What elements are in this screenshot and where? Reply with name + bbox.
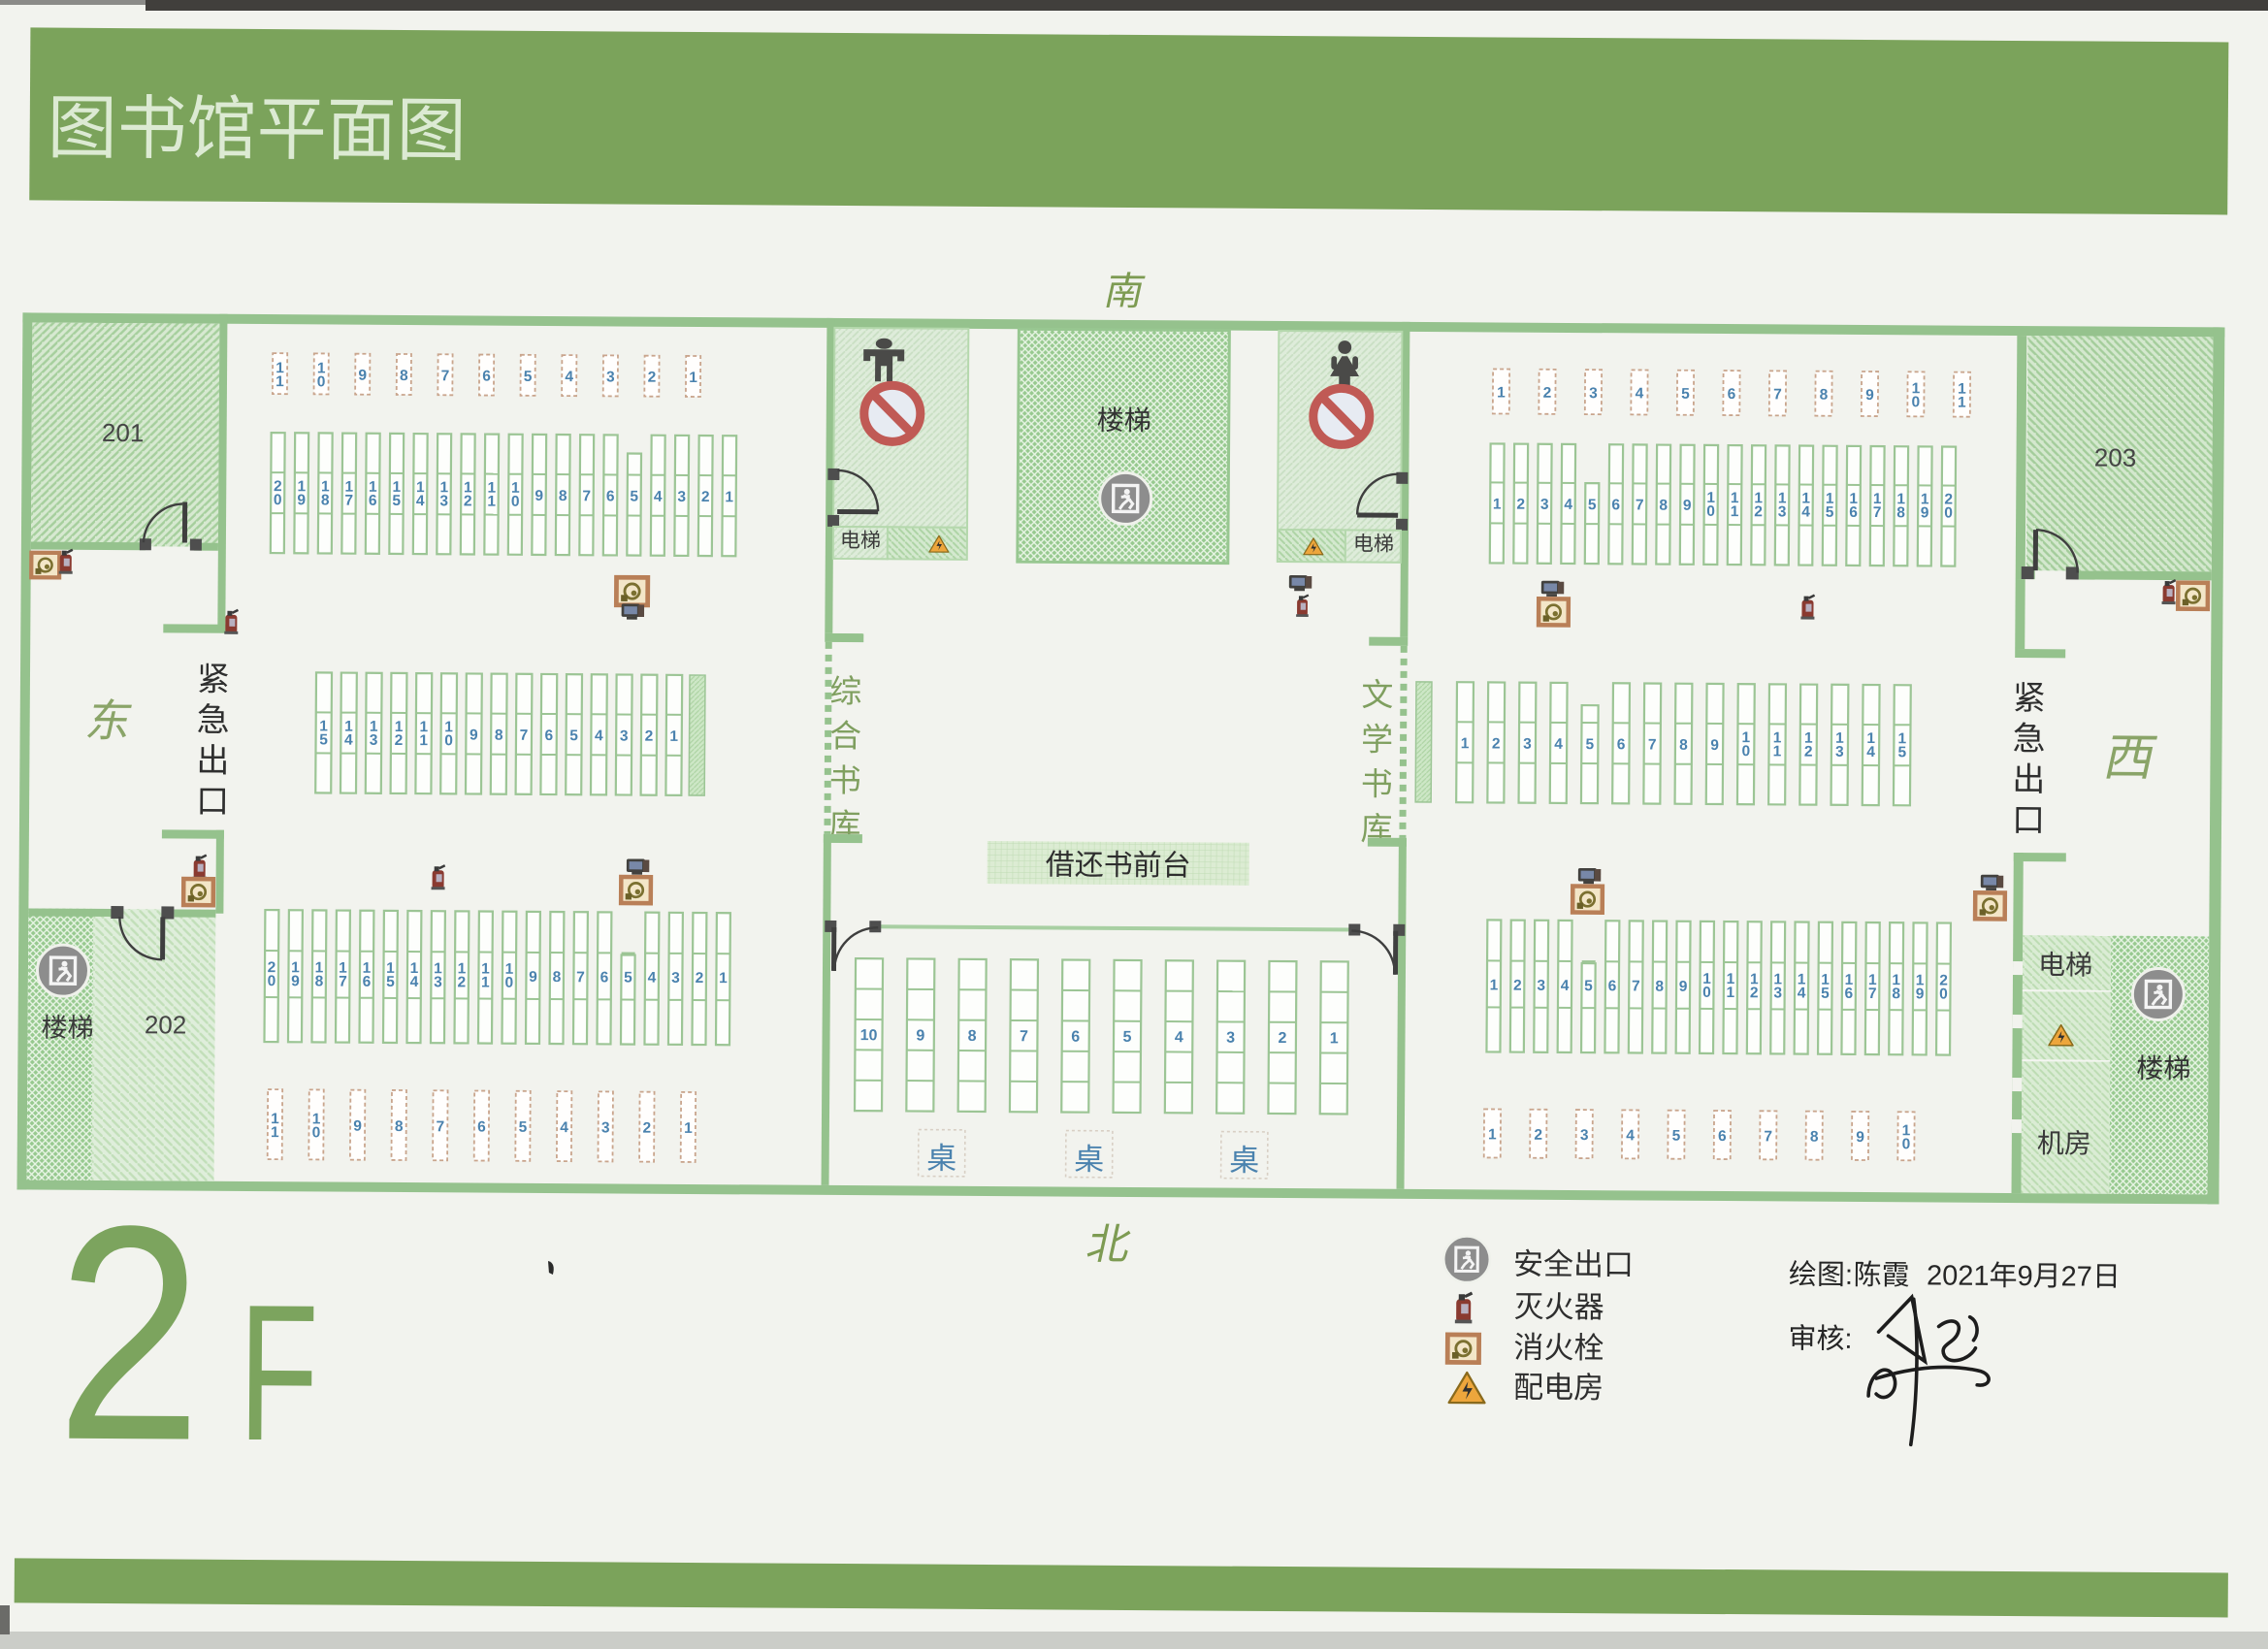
svg-text:19: 19 [291, 959, 300, 989]
svg-text:1: 1 [684, 1120, 693, 1137]
svg-text:15: 15 [1826, 491, 1834, 521]
svg-text:17: 17 [1873, 491, 1882, 521]
svg-text:11: 11 [481, 961, 490, 991]
svg-text:10: 10 [444, 719, 453, 749]
svg-text:14: 14 [1798, 972, 1806, 1002]
svg-text:10: 10 [1902, 1122, 1911, 1152]
svg-text:8: 8 [1820, 387, 1829, 404]
svg-text:17: 17 [344, 479, 353, 509]
svg-text:4: 4 [1564, 497, 1572, 513]
svg-text:10: 10 [1702, 971, 1711, 1001]
svg-text:3: 3 [1589, 385, 1598, 402]
svg-text:15: 15 [1821, 972, 1830, 1002]
svg-text:3: 3 [1540, 497, 1549, 513]
svg-text:11: 11 [1726, 971, 1734, 1001]
svg-text:12: 12 [1754, 490, 1763, 520]
svg-text:10: 10 [860, 1027, 878, 1044]
svg-text:4: 4 [1561, 978, 1570, 994]
svg-text:1: 1 [689, 370, 697, 386]
svg-text:5: 5 [1588, 497, 1597, 513]
svg-text:8: 8 [395, 1118, 404, 1135]
svg-text:12: 12 [464, 479, 472, 509]
svg-text::: : [1844, 1324, 1852, 1355]
svg-text:5: 5 [1681, 386, 1690, 403]
svg-text:6: 6 [544, 727, 553, 744]
svg-text:2: 2 [648, 370, 657, 386]
svg-text:2: 2 [1543, 385, 1552, 402]
svg-text:4: 4 [1626, 1127, 1635, 1144]
svg-text:10: 10 [317, 360, 326, 390]
svg-text:11: 11 [275, 360, 284, 390]
svg-text:20: 20 [274, 478, 282, 508]
svg-text:6: 6 [1071, 1029, 1080, 1046]
svg-text:7: 7 [582, 488, 591, 504]
svg-text:2: 2 [1278, 1030, 1286, 1047]
svg-text:8: 8 [495, 727, 503, 744]
svg-text:3: 3 [606, 369, 615, 385]
svg-text:7: 7 [436, 1118, 444, 1135]
svg-text:1: 1 [725, 489, 733, 505]
svg-text:8: 8 [1810, 1129, 1819, 1146]
svg-text:2: 2 [642, 1120, 651, 1137]
svg-text:3: 3 [671, 970, 680, 986]
svg-text:1: 1 [1497, 384, 1506, 401]
svg-text:6: 6 [1728, 386, 1736, 403]
svg-text:13: 13 [439, 479, 448, 509]
svg-text:8: 8 [1655, 979, 1664, 995]
svg-text:5: 5 [1585, 736, 1594, 753]
svg-text:14: 14 [1801, 491, 1810, 521]
svg-text:2: 2 [1516, 497, 1525, 513]
svg-text:16: 16 [369, 479, 377, 509]
svg-text:6: 6 [600, 969, 609, 986]
svg-text:3: 3 [1523, 736, 1532, 753]
svg-text:5: 5 [1672, 1128, 1681, 1145]
svg-text:7: 7 [441, 368, 450, 384]
svg-text:9: 9 [1683, 498, 1692, 514]
svg-text:5: 5 [569, 727, 578, 744]
svg-text:18: 18 [315, 959, 324, 989]
svg-text:12: 12 [1804, 730, 1813, 760]
svg-text:3: 3 [601, 1119, 610, 1136]
svg-text:9: 9 [358, 368, 367, 384]
svg-text:1: 1 [1490, 977, 1499, 993]
svg-text:15: 15 [392, 479, 401, 509]
svg-text:2: 2 [1492, 735, 1501, 752]
svg-text:202: 202 [145, 1010, 187, 1039]
svg-text:7: 7 [1764, 1128, 1772, 1145]
svg-text:4: 4 [648, 970, 657, 986]
svg-text:3: 3 [1537, 978, 1545, 994]
svg-text:19: 19 [1921, 491, 1929, 521]
svg-text:1: 1 [719, 970, 728, 986]
svg-text:2: 2 [645, 728, 654, 745]
svg-text:10: 10 [1741, 729, 1750, 760]
svg-text:14: 14 [344, 719, 353, 749]
svg-text:11: 11 [1731, 490, 1739, 520]
svg-text:201: 201 [102, 418, 145, 447]
svg-text:3: 3 [1580, 1127, 1589, 1144]
svg-text:11: 11 [1773, 729, 1782, 760]
svg-text:13: 13 [1835, 730, 1844, 760]
svg-text:17: 17 [1868, 972, 1877, 1002]
svg-text:4: 4 [595, 727, 603, 744]
svg-text:9: 9 [2017, 1261, 2032, 1292]
svg-text:5: 5 [624, 970, 632, 986]
svg-text:2: 2 [1534, 1127, 1542, 1144]
svg-text:6: 6 [1608, 978, 1617, 994]
svg-text:12: 12 [458, 960, 467, 990]
svg-text:5: 5 [524, 369, 533, 385]
svg-text:4: 4 [565, 369, 573, 385]
svg-text:11: 11 [1958, 381, 1966, 411]
svg-text:18: 18 [321, 478, 330, 508]
svg-text:3: 3 [677, 489, 686, 505]
svg-text:1: 1 [1493, 496, 1502, 512]
svg-text:3: 3 [620, 727, 629, 744]
svg-text:10: 10 [1912, 380, 1921, 410]
svg-text:2: 2 [696, 970, 704, 986]
svg-text:2: 2 [55, 1162, 203, 1504]
svg-text:6: 6 [482, 369, 491, 385]
svg-text:14: 14 [1866, 730, 1875, 760]
svg-text:9: 9 [535, 488, 543, 504]
svg-text:27: 27 [2061, 1261, 2092, 1292]
svg-text:2: 2 [1513, 978, 1522, 994]
svg-text:10: 10 [511, 480, 520, 510]
svg-text:4: 4 [1554, 736, 1563, 753]
svg-text:8: 8 [400, 368, 408, 384]
svg-text:10: 10 [505, 961, 514, 991]
svg-text:12: 12 [1750, 971, 1759, 1001]
svg-text:18: 18 [1896, 491, 1905, 521]
svg-text:4: 4 [1175, 1029, 1183, 1046]
svg-text:6: 6 [1617, 736, 1626, 753]
svg-text:203: 203 [2094, 443, 2137, 472]
svg-text:1: 1 [669, 728, 678, 745]
svg-text:9: 9 [529, 969, 537, 986]
svg-text:8: 8 [1659, 498, 1668, 514]
svg-text:15: 15 [386, 960, 395, 990]
svg-text:5: 5 [519, 1119, 528, 1136]
svg-text:4: 4 [654, 489, 663, 505]
svg-text:16: 16 [363, 960, 372, 990]
svg-text:5: 5 [1584, 978, 1593, 994]
svg-text:4: 4 [1636, 385, 1644, 402]
svg-text:6: 6 [477, 1119, 486, 1136]
svg-text:7: 7 [1648, 737, 1657, 754]
svg-text:6: 6 [1718, 1128, 1727, 1145]
svg-text:11: 11 [419, 719, 428, 749]
svg-text:9: 9 [353, 1118, 362, 1135]
svg-text:2: 2 [701, 489, 710, 505]
svg-text:2021: 2021 [1927, 1260, 1990, 1291]
svg-text:11: 11 [487, 480, 496, 510]
svg-text:9: 9 [1710, 737, 1719, 754]
svg-text:20: 20 [268, 959, 276, 989]
svg-text:F: F [238, 1265, 318, 1482]
svg-text:7: 7 [1632, 978, 1640, 994]
svg-text:13: 13 [1778, 490, 1787, 520]
svg-text:6: 6 [1611, 497, 1620, 513]
svg-text:15: 15 [319, 718, 328, 748]
svg-text:1: 1 [1330, 1030, 1339, 1047]
svg-text:10: 10 [1706, 490, 1715, 520]
svg-text:5: 5 [1123, 1029, 1132, 1046]
svg-text:8: 8 [1679, 737, 1688, 754]
svg-text:14: 14 [416, 479, 425, 509]
svg-text:9: 9 [1865, 387, 1874, 404]
svg-text::: : [1845, 1260, 1853, 1291]
svg-text:13: 13 [1773, 971, 1782, 1001]
svg-text:13: 13 [434, 960, 442, 990]
svg-text:9: 9 [1856, 1129, 1864, 1146]
svg-text:7: 7 [1636, 497, 1644, 513]
svg-text:20: 20 [1944, 492, 1953, 522]
svg-text:1: 1 [1488, 1126, 1497, 1143]
svg-text:16: 16 [1844, 972, 1853, 1002]
svg-text:12: 12 [395, 719, 404, 749]
svg-text:11: 11 [271, 1111, 279, 1141]
svg-text:7: 7 [576, 969, 585, 986]
svg-text:20: 20 [1939, 973, 1948, 1003]
svg-text:1: 1 [1461, 735, 1470, 752]
svg-text:17: 17 [339, 960, 347, 990]
svg-text:10: 10 [312, 1111, 321, 1141]
svg-text:9: 9 [470, 727, 478, 743]
svg-text:13: 13 [370, 719, 378, 749]
svg-text:8: 8 [968, 1028, 977, 1045]
svg-text:7: 7 [1020, 1028, 1028, 1045]
svg-text:7: 7 [520, 727, 529, 744]
svg-text:4: 4 [560, 1119, 568, 1136]
svg-text:3: 3 [1226, 1030, 1235, 1047]
svg-text:6: 6 [606, 488, 615, 504]
svg-text:19: 19 [1916, 972, 1925, 1002]
svg-text:8: 8 [559, 488, 567, 504]
svg-text:7: 7 [1773, 386, 1782, 403]
svg-text:5: 5 [630, 489, 638, 505]
svg-text:19: 19 [297, 478, 306, 508]
svg-text:16: 16 [1849, 491, 1858, 521]
svg-text:15: 15 [1897, 730, 1906, 760]
svg-text:8: 8 [553, 969, 562, 986]
svg-text:14: 14 [410, 960, 419, 990]
svg-text:18: 18 [1892, 972, 1900, 1002]
svg-text:9: 9 [1679, 979, 1688, 995]
svg-text:9: 9 [916, 1028, 924, 1045]
